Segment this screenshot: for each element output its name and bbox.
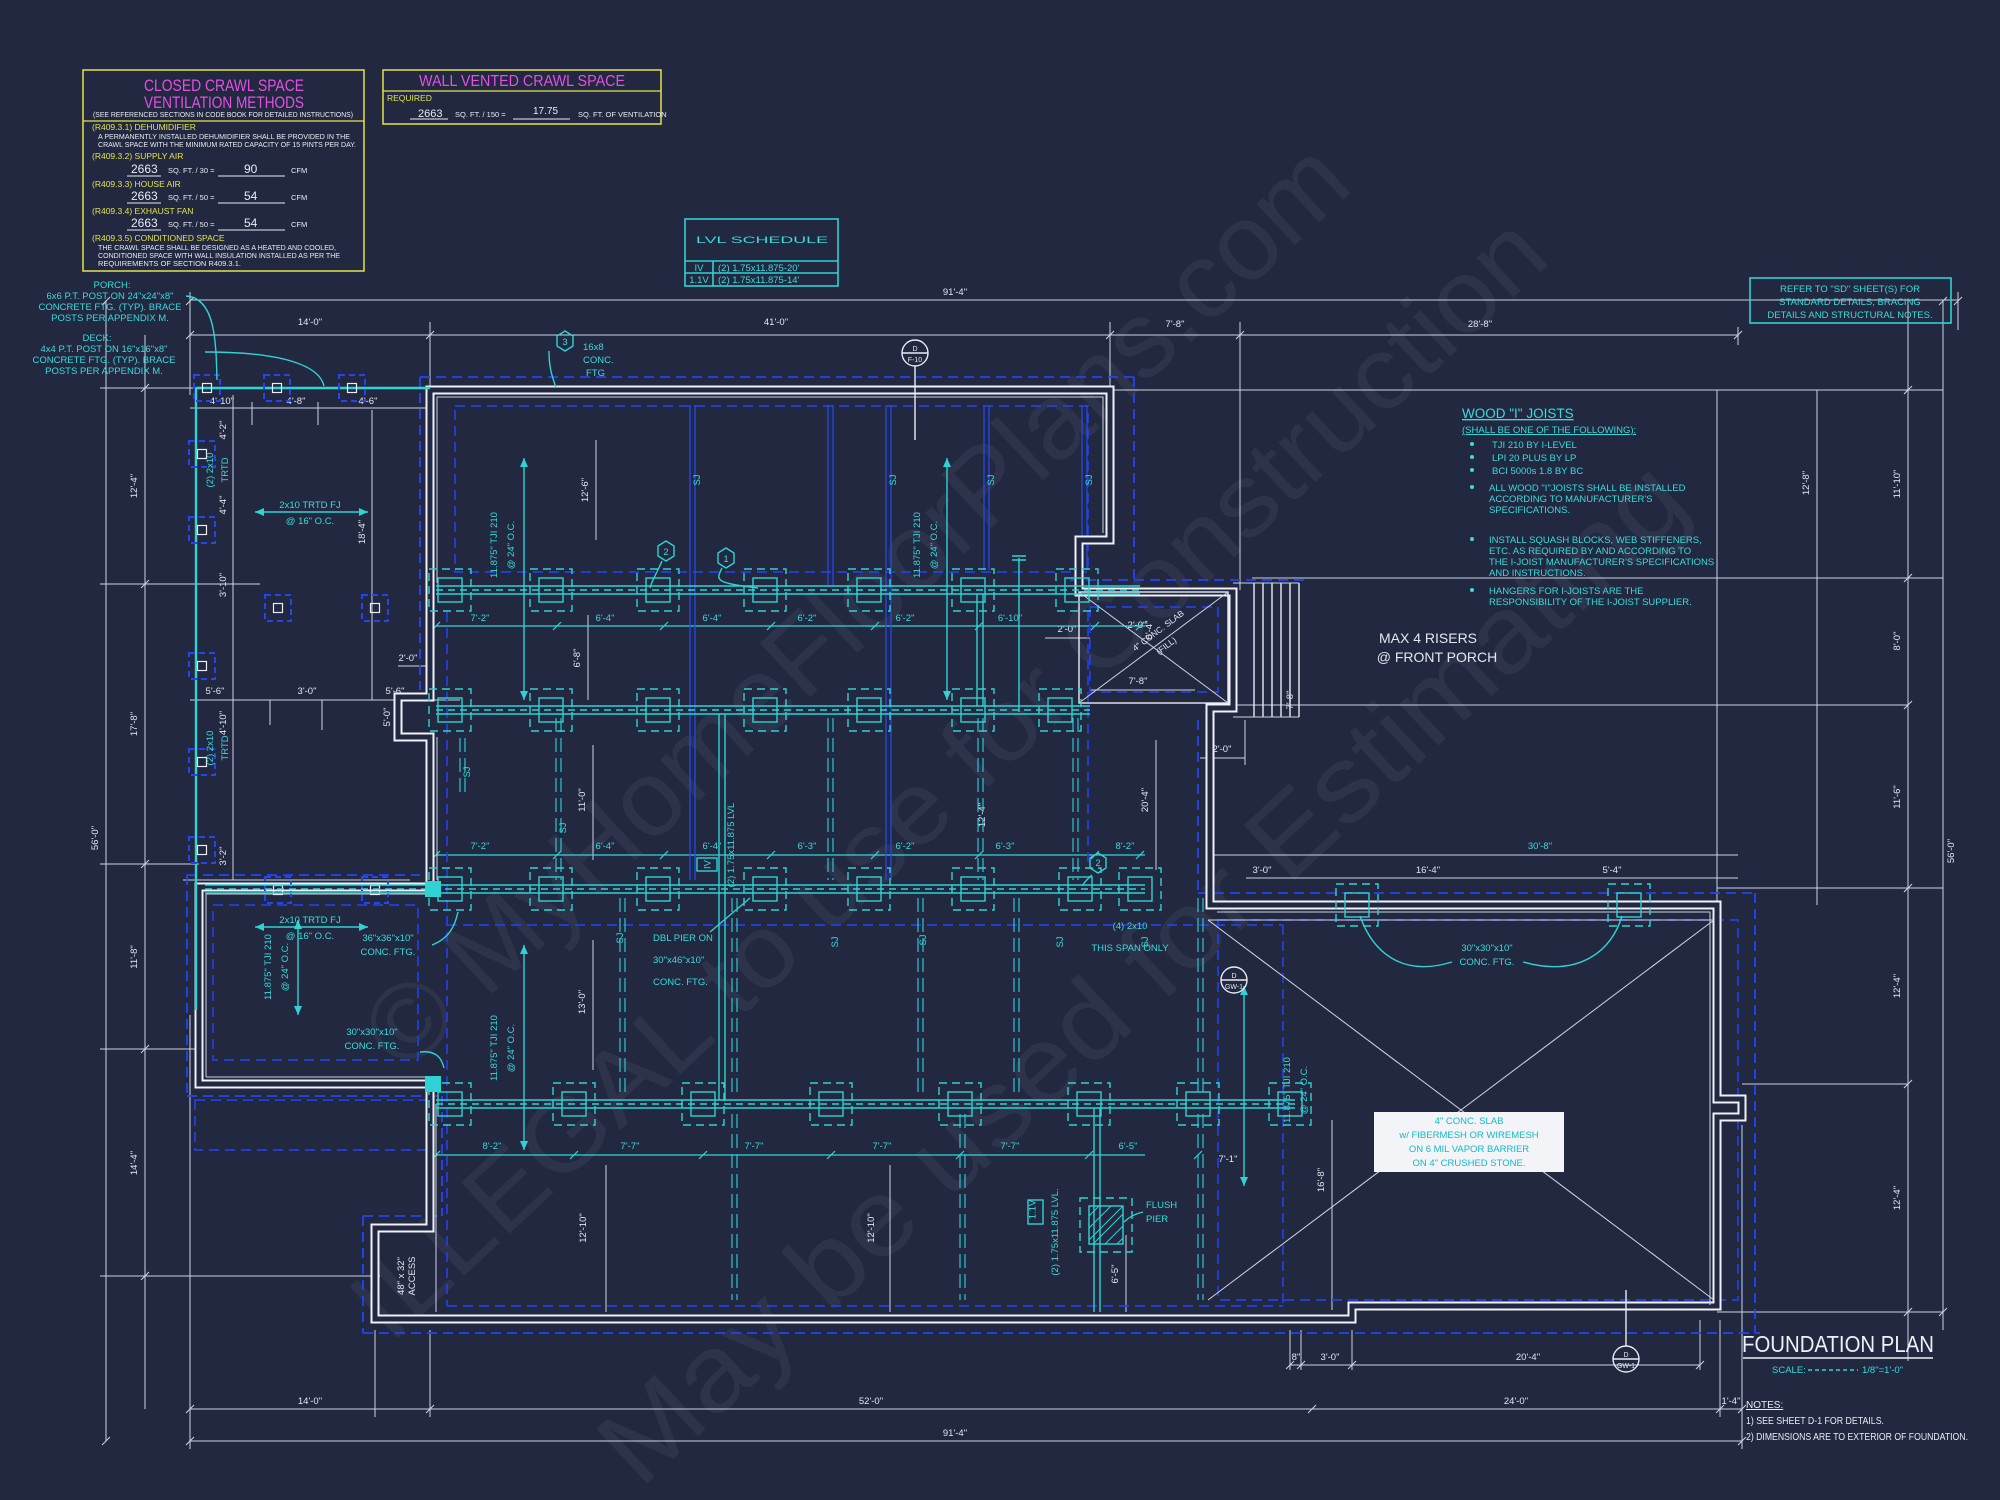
svg-text:SPECIFICATIONS.: SPECIFICATIONS. xyxy=(1489,505,1570,516)
svg-text:RESPONSIBILITY OF THE I-JOIST: RESPONSIBILITY OF THE I-JOIST SUPPLIER. xyxy=(1489,597,1692,608)
svg-text:91'-4": 91'-4" xyxy=(943,1428,967,1439)
svg-text:@ FRONT PORCH: @ FRONT PORCH xyxy=(1377,649,1498,665)
svg-text:4'-2": 4'-2" xyxy=(218,421,229,440)
svg-text:36"x36"x10": 36"x36"x10" xyxy=(362,933,413,944)
svg-text:PORCH:: PORCH: xyxy=(94,280,131,291)
svg-text:(R409.3.5) CONDITIONED SPACE: (R409.3.5) CONDITIONED SPACE xyxy=(92,233,225,243)
svg-text:REQUIRED: REQUIRED xyxy=(387,93,432,103)
svg-text:56'-0": 56'-0" xyxy=(90,826,101,850)
svg-text:4'-10": 4'-10" xyxy=(210,396,234,407)
svg-text:7'-7": 7'-7" xyxy=(621,1141,640,1152)
svg-text:F-10: F-10 xyxy=(908,357,923,364)
svg-text:54: 54 xyxy=(244,189,258,203)
svg-text:3'-0": 3'-0" xyxy=(298,686,317,697)
svg-text:CONC. FTG.: CONC. FTG. xyxy=(1460,957,1515,968)
svg-text:11'-8": 11'-8" xyxy=(129,945,140,969)
svg-text:6'-3": 6'-3" xyxy=(996,841,1015,852)
svg-text:3'-0": 3'-0" xyxy=(1253,865,1272,876)
svg-text:SJ: SJ xyxy=(615,932,626,943)
svg-text:7'-8": 7'-8" xyxy=(1166,319,1185,330)
svg-text:6'-2": 6'-2" xyxy=(896,841,915,852)
svg-text:GW-1: GW-1 xyxy=(1225,984,1243,991)
svg-text:12'-8": 12'-8" xyxy=(1801,471,1812,495)
svg-text:14'-0": 14'-0" xyxy=(298,317,322,328)
svg-text:6'-5": 6'-5" xyxy=(1110,1265,1121,1284)
svg-text:SQ. FT. / 50 =: SQ. FT. / 50 = xyxy=(168,193,215,202)
svg-text:6'-5": 6'-5" xyxy=(1119,1141,1138,1152)
svg-text:(2) 1.75x11.875-14': (2) 1.75x11.875-14' xyxy=(718,275,800,286)
svg-text:GW-1: GW-1 xyxy=(1617,1363,1635,1370)
svg-text:2x10 TRTD FJ: 2x10 TRTD FJ xyxy=(279,915,341,926)
svg-text:8'-2": 8'-2" xyxy=(1116,841,1135,852)
svg-text:D: D xyxy=(912,346,917,353)
svg-text:2) DIMENSIONS ARE TO EXTERIOR: 2) DIMENSIONS ARE TO EXTERIOR OF FOUNDAT… xyxy=(1746,1432,1968,1443)
svg-text:8'-0": 8'-0" xyxy=(1892,632,1903,651)
svg-text:6'-8": 6'-8" xyxy=(572,649,583,668)
svg-text:52'-0": 52'-0" xyxy=(859,1396,883,1407)
svg-text:@ 16" O.C.: @ 16" O.C. xyxy=(286,516,334,527)
svg-text:12'-4": 12'-4" xyxy=(129,474,140,498)
svg-text:ON 4" CRUSHED STONE.: ON 4" CRUSHED STONE. xyxy=(1413,1158,1526,1169)
svg-text:5'-0": 5'-0" xyxy=(382,708,393,727)
svg-text:DECK:: DECK: xyxy=(82,333,111,344)
svg-text:11.875" TJI 210: 11.875" TJI 210 xyxy=(263,934,274,1000)
svg-text:ACCORDING TO MANUFACTURER'S: ACCORDING TO MANUFACTURER'S xyxy=(1489,494,1653,505)
svg-text:30"x30"x10": 30"x30"x10" xyxy=(346,1027,397,1038)
svg-text:30'-8": 30'-8" xyxy=(1528,841,1552,852)
svg-text:BCI 5000s 1.8 BY BC: BCI 5000s 1.8 BY BC xyxy=(1492,466,1583,477)
svg-text:18'-4": 18'-4" xyxy=(357,520,368,544)
svg-text:IV: IV xyxy=(695,263,705,274)
svg-text:11'-10": 11'-10" xyxy=(1892,470,1903,499)
svg-text:(SHALL BE ONE OF THE FOLLOWING: (SHALL BE ONE OF THE FOLLOWING): xyxy=(1462,425,1636,436)
svg-text:SQ. FT. / 50 =: SQ. FT. / 50 = xyxy=(168,220,215,229)
svg-text:(R409.3.1) DEHUMIDIFIER: (R409.3.1) DEHUMIDIFIER xyxy=(92,122,196,132)
svg-text:SJ: SJ xyxy=(462,766,473,777)
svg-text:TJI 210 BY I-LEVEL: TJI 210 BY I-LEVEL xyxy=(1492,440,1577,451)
svg-text:ALL WOOD "I"JOISTS SHALL BE IN: ALL WOOD "I"JOISTS SHALL BE INSTALLED xyxy=(1489,483,1686,494)
svg-text:SJ: SJ xyxy=(1084,474,1095,485)
svg-text:6'-3": 6'-3" xyxy=(798,841,817,852)
svg-text:14'-0": 14'-0" xyxy=(298,1396,322,1407)
svg-text:7'-2": 7'-2" xyxy=(471,841,490,852)
svg-text:91'-4": 91'-4" xyxy=(943,287,967,298)
svg-text:8'-2": 8'-2" xyxy=(483,1141,502,1152)
svg-text:12'-6": 12'-6" xyxy=(580,478,591,502)
svg-text:2663: 2663 xyxy=(131,216,158,230)
svg-text:16x8: 16x8 xyxy=(583,342,604,353)
svg-text:SJ: SJ xyxy=(888,474,899,485)
svg-text:1/8"=1'-0": 1/8"=1'-0" xyxy=(1862,1365,1903,1376)
svg-text:4'-10": 4'-10" xyxy=(218,711,229,735)
svg-text:11.875" TJI 210: 11.875" TJI 210 xyxy=(489,1015,500,1081)
svg-text:2663: 2663 xyxy=(418,108,442,120)
svg-text:@ 24" O.C.: @ 24" O.C. xyxy=(280,943,291,991)
svg-text:TRTD: TRTD xyxy=(220,457,231,482)
svg-text:4" CONC. SLAB: 4" CONC. SLAB xyxy=(1435,1116,1504,1127)
svg-text:13'-0": 13'-0" xyxy=(577,990,588,1014)
svg-text:SJ: SJ xyxy=(558,822,569,833)
svg-text:AND INSTRUCTIONS.: AND INSTRUCTIONS. xyxy=(1489,568,1586,579)
svg-text:DBL PIER ON: DBL PIER ON xyxy=(653,933,713,944)
svg-text:(2) 1.75x11.875 LVL: (2) 1.75x11.875 LVL xyxy=(726,803,737,888)
svg-text:5'-4": 5'-4" xyxy=(1603,865,1622,876)
svg-text:28'-8": 28'-8" xyxy=(1468,319,1492,330)
svg-text:2x10 TRTD FJ: 2x10 TRTD FJ xyxy=(279,500,341,511)
svg-text:SJ: SJ xyxy=(1055,936,1066,947)
svg-text:6x6 P.T. POST ON 24"x24"x8": 6x6 P.T. POST ON 24"x24"x8" xyxy=(47,291,174,302)
svg-text:54: 54 xyxy=(244,216,258,230)
svg-text:(R409.3.2) SUPPLY AIR: (R409.3.2) SUPPLY AIR xyxy=(92,151,183,161)
svg-text:7'-7": 7'-7" xyxy=(1001,1141,1020,1152)
svg-text:56'-0": 56'-0" xyxy=(1946,839,1957,863)
svg-text:1'-4": 1'-4" xyxy=(1722,1396,1741,1407)
svg-text:30"x30"x10": 30"x30"x10" xyxy=(1461,943,1512,954)
svg-text:11'-0": 11'-0" xyxy=(577,788,588,812)
svg-text:2663: 2663 xyxy=(131,189,158,203)
svg-text:30"x46"x10": 30"x46"x10" xyxy=(653,955,704,966)
svg-text:WOOD "I" JOISTS: WOOD "I" JOISTS xyxy=(1462,406,1574,421)
svg-text:(2) 2x10: (2) 2x10 xyxy=(205,453,216,488)
svg-text:CLOSED CRAWL SPACE: CLOSED CRAWL SPACE xyxy=(144,77,304,95)
svg-text:REQUIREMENTS OF SECTION R409.3: REQUIREMENTS OF SECTION R409.3.1. xyxy=(98,259,241,268)
svg-text:11.875" TJI 210: 11.875" TJI 210 xyxy=(912,512,923,578)
svg-text:CONC. FTG.: CONC. FTG. xyxy=(361,947,416,958)
svg-text:INSTALL SQUASH BLOCKS, WEB STI: INSTALL SQUASH BLOCKS, WEB STIFFENERS, xyxy=(1489,535,1702,546)
svg-text:2: 2 xyxy=(1095,858,1100,869)
svg-text:TRTD: TRTD xyxy=(220,735,231,760)
svg-text:3: 3 xyxy=(562,337,567,348)
svg-text:1: 1 xyxy=(723,554,728,565)
svg-text:90: 90 xyxy=(244,162,258,176)
svg-text:CONC. FTG.: CONC. FTG. xyxy=(653,977,708,988)
svg-text:IV: IV xyxy=(703,859,714,869)
svg-text:1.1V: 1.1V xyxy=(689,275,709,286)
svg-text:3'-0": 3'-0" xyxy=(1321,1352,1340,1363)
svg-text:20'-4": 20'-4" xyxy=(1140,788,1151,812)
svg-text:6'-2": 6'-2" xyxy=(896,613,915,624)
svg-text:MAX 4 RISERS: MAX 4 RISERS xyxy=(1379,630,1477,646)
svg-text:24'-0": 24'-0" xyxy=(1504,1396,1528,1407)
svg-text:16'-8": 16'-8" xyxy=(1316,1168,1327,1192)
svg-text:12'-4": 12'-4" xyxy=(1892,974,1903,998)
svg-text:12'-4": 12'-4" xyxy=(1892,1186,1903,1210)
svg-text:(2) 1.75x11.875 LVL.: (2) 1.75x11.875 LVL. xyxy=(1050,1188,1061,1275)
svg-text:D: D xyxy=(1231,973,1236,980)
svg-text:NOTES:: NOTES: xyxy=(1746,1400,1783,1411)
svg-text:SQ. FT. OF VENTILATION: SQ. FT. OF VENTILATION xyxy=(578,110,667,119)
svg-text:CFM: CFM xyxy=(291,220,307,229)
svg-text:D: D xyxy=(1623,1352,1628,1359)
svg-text:w/ FIBERMESH OR WIREMESH: w/ FIBERMESH OR WIREMESH xyxy=(1398,1130,1538,1141)
svg-text:CONCRETE FTG. (TYP). BRACE: CONCRETE FTG. (TYP). BRACE xyxy=(32,355,175,366)
svg-text:(2) 1.75x11.875-20': (2) 1.75x11.875-20' xyxy=(718,263,800,274)
svg-text:ETC. AS REQUIRED BY AND ACCORD: ETC. AS REQUIRED BY AND ACCORDING TO xyxy=(1489,546,1691,557)
svg-text:SQ. FT. / 30 =: SQ. FT. / 30 = xyxy=(168,166,215,175)
svg-text:3'-2": 3'-2" xyxy=(218,847,229,866)
svg-text:FOUNDATION PLAN: FOUNDATION PLAN xyxy=(1742,1331,1934,1357)
svg-text:CFM: CFM xyxy=(291,193,307,202)
svg-text:WALL VENTED CRAWL SPACE: WALL VENTED CRAWL SPACE xyxy=(419,73,625,90)
svg-text:@ 16" O.C.: @ 16" O.C. xyxy=(286,931,334,942)
svg-text:SJ: SJ xyxy=(830,936,841,947)
svg-text:16'-4": 16'-4" xyxy=(1416,865,1440,876)
svg-text:11.875" TJI 210: 11.875" TJI 210 xyxy=(1282,1057,1293,1123)
svg-text:(2) 2x10: (2) 2x10 xyxy=(205,731,216,766)
svg-text:@ 24" O.C.: @ 24" O.C. xyxy=(506,1024,517,1072)
svg-text:6'-2": 6'-2" xyxy=(798,613,817,624)
svg-text:POSTS PER APPENDIX M.: POSTS PER APPENDIX M. xyxy=(45,366,163,377)
svg-text:CFM: CFM xyxy=(291,166,307,175)
svg-text:7'-2": 7'-2" xyxy=(471,613,490,624)
svg-text:4'-4": 4'-4" xyxy=(218,496,229,515)
svg-text:(R409.3.3) HOUSE AIR: (R409.3.3) HOUSE AIR xyxy=(92,179,181,189)
svg-text:12'-10": 12'-10" xyxy=(866,1213,877,1242)
svg-text:2'-0": 2'-0" xyxy=(1213,744,1232,755)
svg-text:SJ: SJ xyxy=(692,474,703,485)
svg-text:CRAWL SPACE WITH THE MINIMUM R: CRAWL SPACE WITH THE MINIMUM RATED CAPAC… xyxy=(98,140,356,149)
svg-text:SJ: SJ xyxy=(918,934,929,945)
svg-text:20'-4": 20'-4" xyxy=(1516,1352,1540,1363)
svg-text:@ 24" O.C.: @ 24" O.C. xyxy=(1299,1066,1310,1114)
svg-text:POSTS PER APPENDIX M.: POSTS PER APPENDIX M. xyxy=(51,313,169,324)
svg-text:7'-7": 7'-7" xyxy=(873,1141,892,1152)
svg-text:11.875" TJI 210: 11.875" TJI 210 xyxy=(489,512,500,578)
svg-text:SJ: SJ xyxy=(986,474,997,485)
svg-text:DETAILS AND STRUCTURAL NOTES.: DETAILS AND STRUCTURAL NOTES. xyxy=(1767,310,1932,321)
svg-text:2: 2 xyxy=(663,547,668,558)
svg-text:SQ. FT. / 150 =: SQ. FT. / 150 = xyxy=(455,110,506,119)
svg-text:REFER TO "SD" SHEET(S) FOR: REFER TO "SD" SHEET(S) FOR xyxy=(1780,284,1920,295)
svg-text:@ 24" O.C.: @ 24" O.C. xyxy=(506,521,517,569)
svg-text:(R409.3.4) EXHAUST FAN: (R409.3.4) EXHAUST FAN xyxy=(92,206,193,216)
svg-text:2663: 2663 xyxy=(131,162,158,176)
svg-text:CONCRETE FTG. (TYP). BRACE: CONCRETE FTG. (TYP). BRACE xyxy=(38,302,181,313)
svg-text:12'-10": 12'-10" xyxy=(578,1213,589,1242)
svg-text:41'-0": 41'-0" xyxy=(764,317,788,328)
svg-text:ON 6 MIL VAPOR BARRIER: ON 6 MIL VAPOR BARRIER xyxy=(1409,1144,1529,1155)
svg-text:48" x 32": 48" x 32" xyxy=(396,1257,407,1295)
svg-text:SCALE:: SCALE: xyxy=(1772,1365,1806,1376)
svg-text:PIER: PIER xyxy=(1146,1214,1168,1225)
svg-text:6'-4": 6'-4" xyxy=(596,613,615,624)
svg-text:17'-8": 17'-8" xyxy=(129,712,140,736)
svg-text:7'-7": 7'-7" xyxy=(745,1141,764,1152)
svg-text:THE I-JOIST MANUFACTURER'S SPE: THE I-JOIST MANUFACTURER'S SPECIFICATION… xyxy=(1489,557,1714,568)
svg-text:3'-10": 3'-10" xyxy=(218,573,229,597)
svg-text:(SEE REFERENCED SECTIONS IN CO: (SEE REFERENCED SECTIONS IN CODE BOOK FO… xyxy=(93,110,353,119)
svg-text:5'-6": 5'-6" xyxy=(206,686,225,697)
svg-text:LVL SCHEDULE: LVL SCHEDULE xyxy=(696,235,828,246)
svg-text:6'-4": 6'-4" xyxy=(703,613,722,624)
svg-text:HANGERS FOR I-JOISTS ARE THE: HANGERS FOR I-JOISTS ARE THE xyxy=(1489,586,1644,597)
svg-text:11'-6": 11'-6" xyxy=(1892,785,1903,809)
svg-text:ACCESS: ACCESS xyxy=(407,1256,418,1295)
svg-text:1) SEE SHEET D-1 FOR DETAILS.: 1) SEE SHEET D-1 FOR DETAILS. xyxy=(1746,1416,1884,1427)
svg-text:CONC. FTG.: CONC. FTG. xyxy=(345,1041,400,1052)
svg-text:FTG: FTG xyxy=(586,368,605,379)
svg-text:2'-0": 2'-0" xyxy=(399,653,418,664)
svg-text:7'-1": 7'-1" xyxy=(1219,1154,1238,1165)
svg-text:(4) 2x10: (4) 2x10 xyxy=(1113,921,1148,932)
svg-text:STANDARD DETAILS, BRACING: STANDARD DETAILS, BRACING xyxy=(1779,297,1921,308)
svg-text:1.1V: 1.1V xyxy=(1028,1199,1039,1219)
svg-text:17.75: 17.75 xyxy=(533,106,558,117)
svg-text:4x4 P.T. POST ON 16"x16"x8": 4x4 P.T. POST ON 16"x16"x8" xyxy=(41,344,168,355)
svg-text:FLUSH: FLUSH xyxy=(1146,1200,1177,1211)
svg-text:6'-4": 6'-4" xyxy=(596,841,615,852)
svg-text:CONC.: CONC. xyxy=(583,355,614,366)
svg-text:THIS SPAN ONLY: THIS SPAN ONLY xyxy=(1091,943,1169,954)
svg-text:LPI 20 PLUS BY LP: LPI 20 PLUS BY LP xyxy=(1492,453,1576,464)
svg-text:14'-4": 14'-4" xyxy=(129,1151,140,1175)
svg-text:7'-8": 7'-8" xyxy=(1129,676,1148,687)
svg-text:@ 24" O.C.: @ 24" O.C. xyxy=(929,521,940,569)
